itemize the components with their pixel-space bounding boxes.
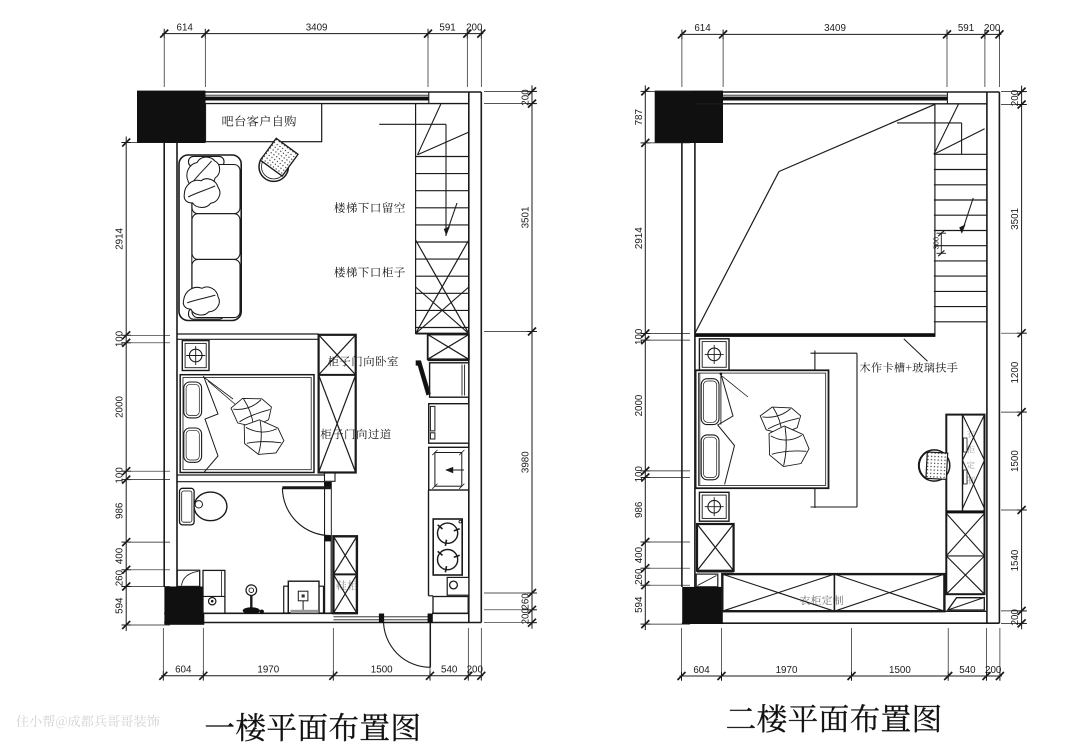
- svg-text:400: 400: [115, 547, 126, 564]
- svg-text:200: 200: [466, 22, 483, 33]
- svg-text:2000: 2000: [634, 394, 645, 416]
- svg-text:1500: 1500: [371, 665, 393, 676]
- svg-text:1500: 1500: [1010, 450, 1021, 472]
- svg-text:540: 540: [959, 665, 976, 676]
- svg-text:3409: 3409: [306, 22, 328, 33]
- svg-text:3409: 3409: [824, 23, 846, 34]
- svg-text:3980: 3980: [521, 451, 532, 473]
- svg-text:787: 787: [634, 109, 645, 125]
- svg-text:1200: 1200: [1010, 361, 1021, 383]
- svg-text:300: 300: [932, 237, 941, 250]
- svg-text:2914: 2914: [115, 227, 126, 249]
- svg-text:986: 986: [634, 501, 645, 518]
- svg-text:540: 540: [441, 665, 458, 676]
- svg-text:3501: 3501: [1010, 208, 1021, 230]
- svg-text:200: 200: [985, 665, 1002, 676]
- svg-text:100: 100: [115, 467, 126, 484]
- svg-text:400: 400: [634, 546, 645, 563]
- svg-text:1970: 1970: [776, 665, 798, 676]
- svg-text:100: 100: [634, 328, 645, 345]
- svg-text:594: 594: [115, 597, 126, 614]
- svg-text:2000: 2000: [115, 396, 126, 418]
- svg-text:260: 260: [634, 568, 645, 585]
- svg-text:100: 100: [634, 465, 645, 482]
- svg-text:591: 591: [958, 23, 974, 34]
- svg-text:614: 614: [694, 23, 711, 34]
- svg-text:1500: 1500: [889, 665, 911, 676]
- svg-text:614: 614: [177, 22, 194, 33]
- svg-text:200: 200: [984, 23, 1001, 34]
- svg-text:3501: 3501: [521, 207, 532, 229]
- svg-text:2914: 2914: [634, 227, 645, 249]
- svg-text:986: 986: [115, 502, 126, 519]
- svg-text:1540: 1540: [1010, 549, 1021, 571]
- svg-text:604: 604: [175, 665, 192, 676]
- svg-text:1970: 1970: [257, 665, 279, 676]
- svg-text:591: 591: [439, 22, 455, 33]
- svg-text:594: 594: [634, 596, 645, 613]
- svg-text:260: 260: [521, 593, 532, 610]
- svg-text:100: 100: [115, 330, 126, 347]
- svg-text:604: 604: [693, 665, 710, 676]
- svg-text:260: 260: [115, 569, 126, 586]
